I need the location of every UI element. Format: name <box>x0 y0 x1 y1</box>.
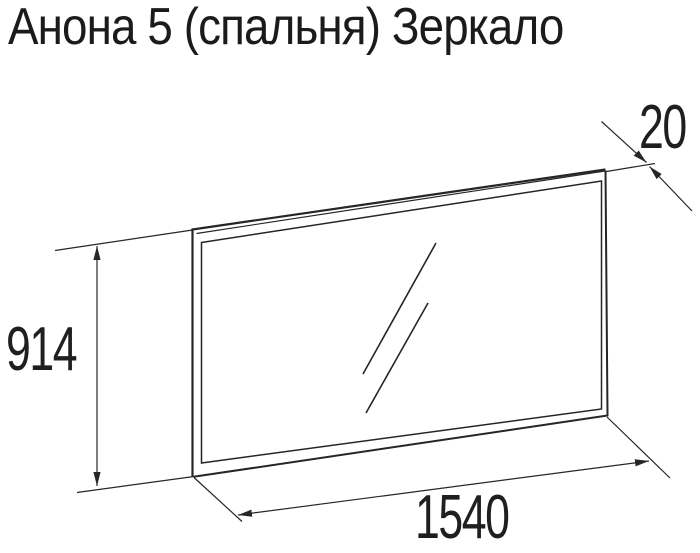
mirror-technical-drawing <box>0 0 700 553</box>
mirror-outer-edge-right-bottom <box>194 171 608 477</box>
dimension-height-label: 914 <box>6 319 76 381</box>
dimension-thickness-extension <box>607 164 656 172</box>
dimension-thickness-arrow-lower <box>650 167 693 212</box>
mirror-body <box>193 170 608 478</box>
dimension-height-extension-top <box>55 230 193 251</box>
dimension-width-extension-left <box>194 478 242 522</box>
dimension-height-extension-bottom <box>77 477 194 493</box>
drawing-page: Анона 5 (спальня) Зеркало <box>0 0 700 553</box>
glass-reflection-line-2 <box>366 303 428 413</box>
dimension-thickness-label: 20 <box>639 97 686 159</box>
dimension-width-label: 1540 <box>415 487 509 549</box>
dimension-width-extension-right <box>607 417 670 478</box>
mirror-top-edge-thickness-line <box>197 171 606 234</box>
mirror-outer-edge-left-top <box>193 170 606 478</box>
